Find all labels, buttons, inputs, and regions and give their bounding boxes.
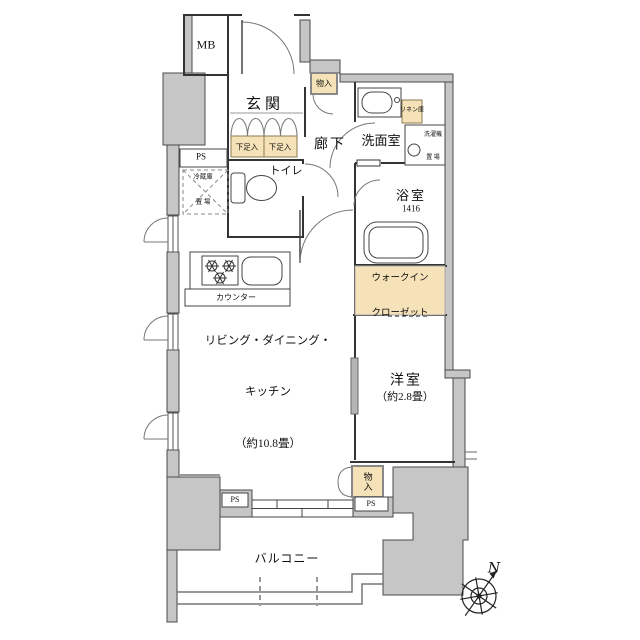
label-genkan: 玄関 xyxy=(246,96,284,115)
kitchen-sink-icon xyxy=(242,257,282,285)
label-balcony: バルコニー xyxy=(255,552,320,567)
label-yoshitsu: 洋室 xyxy=(390,372,422,390)
label-ldk: リビング・ダイニング・ キッチン （約10.8畳） xyxy=(205,298,332,488)
label-fridge: 冷蔵庫 置 場 xyxy=(193,158,213,223)
label-closet-bottom: 物入 xyxy=(361,472,372,492)
label-ps-left: PS xyxy=(231,495,240,505)
vanity-basin-icon xyxy=(362,92,392,113)
label-north: N xyxy=(488,560,500,578)
label-mb: MB xyxy=(197,38,216,53)
label-linen: リネン庫 xyxy=(400,107,424,115)
label-ps-right: PS xyxy=(367,499,376,509)
label-rouka: 廊下 xyxy=(314,136,346,154)
label-yoshitsu-size: （約2.8畳） xyxy=(376,391,434,405)
label-shoe-2: 下足入 xyxy=(269,142,292,151)
label-bath: 浴室 xyxy=(396,188,426,204)
casement-windows xyxy=(144,216,178,450)
label-bath-size: 1416 xyxy=(402,203,420,214)
floor-plan: MB 玄関 物入 廊下 洗面室 リネン庫 洗濯機 置 場 浴室 1416 トイレ… xyxy=(0,0,640,640)
label-senmen: 洗面室 xyxy=(361,133,400,149)
label-closet-top: 物入 xyxy=(316,79,332,89)
balcony-railing xyxy=(177,574,383,604)
label-shoe-1: 下足入 xyxy=(236,142,259,151)
toilet-bowl-icon xyxy=(247,176,277,201)
label-wic: ウォークイン クローゼット xyxy=(371,250,428,345)
label-toilet: トイレ xyxy=(270,165,303,179)
toilet-tank-icon xyxy=(231,173,245,203)
yoshitsu-sliding-door xyxy=(351,358,358,414)
label-washer: 洗濯機 置 場 xyxy=(424,117,442,177)
boundary-ticks xyxy=(465,452,477,459)
